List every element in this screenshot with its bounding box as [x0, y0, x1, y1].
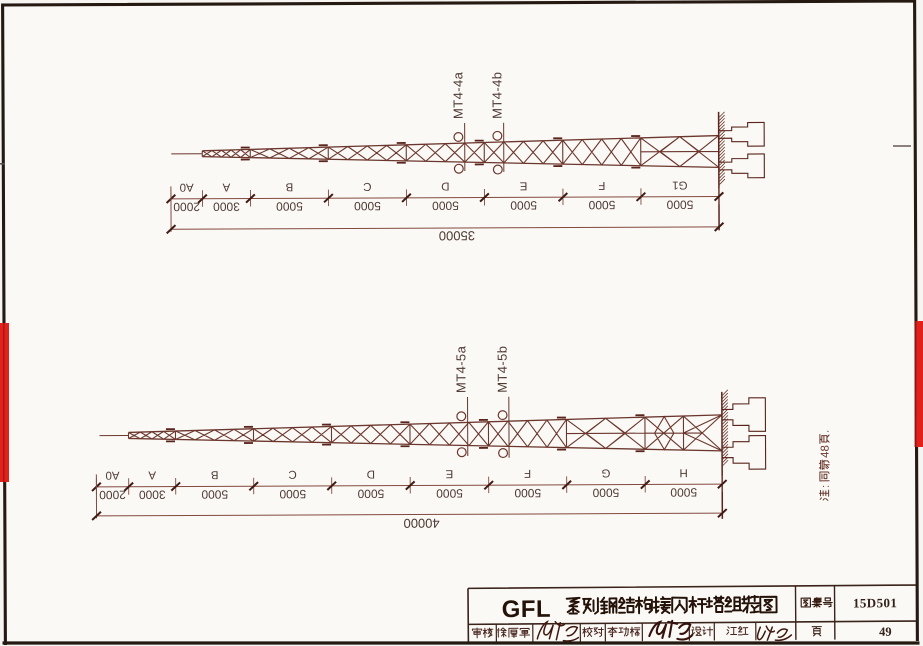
svg-text:5000: 5000 [357, 487, 384, 501]
svg-text:5000: 5000 [432, 199, 459, 213]
svg-text:5000: 5000 [514, 486, 541, 500]
svg-text:MT4-4a: MT4-4a [450, 71, 465, 119]
svg-text:5000: 5000 [354, 199, 381, 213]
svg-text:5000: 5000 [510, 198, 537, 212]
svg-text:GFL: GFL [502, 596, 552, 623]
svg-text:5000: 5000 [588, 198, 615, 212]
svg-text:2000: 2000 [99, 488, 126, 502]
svg-text:B: B [210, 468, 218, 480]
svg-text:G1: G1 [672, 179, 687, 191]
svg-text:D: D [441, 180, 449, 192]
svg-text::: : [820, 485, 832, 488]
svg-text:B: B [285, 180, 293, 192]
svg-text:35000: 35000 [439, 228, 475, 243]
svg-text:E: E [445, 467, 453, 479]
svg-text:F: F [598, 179, 605, 191]
svg-text:C: C [288, 468, 296, 480]
svg-text:H: H [679, 466, 687, 478]
svg-text:2000: 2000 [173, 200, 200, 214]
svg-text:.: . [819, 430, 831, 433]
svg-text:MT4-5b: MT4-5b [495, 346, 510, 393]
svg-text:5000: 5000 [276, 199, 303, 213]
svg-text:A: A [222, 181, 230, 193]
svg-text:C: C [363, 180, 371, 192]
svg-text:49: 49 [879, 625, 892, 639]
svg-text:5000: 5000 [279, 487, 306, 501]
svg-text:5000: 5000 [670, 485, 697, 499]
svg-text:3000: 3000 [139, 488, 166, 502]
svg-text:A0: A0 [180, 181, 194, 193]
svg-text:MT4-4b: MT4-4b [489, 72, 504, 119]
svg-text:5000: 5000 [592, 486, 619, 500]
svg-text:MT4-5a: MT4-5a [453, 345, 468, 393]
svg-text:D: D [367, 468, 375, 480]
svg-text:40000: 40000 [403, 516, 439, 531]
svg-text:5000: 5000 [666, 198, 693, 212]
svg-text:48: 48 [820, 445, 832, 458]
svg-text:15D501: 15D501 [853, 595, 897, 610]
svg-text:A: A [148, 469, 156, 481]
svg-text:E: E [519, 179, 527, 191]
svg-text:G: G [601, 467, 610, 479]
svg-text:5000: 5000 [201, 487, 228, 501]
svg-text:F: F [524, 467, 531, 479]
svg-text:5000: 5000 [436, 486, 463, 500]
svg-text:3000: 3000 [213, 200, 240, 214]
svg-text:A0: A0 [105, 469, 119, 481]
